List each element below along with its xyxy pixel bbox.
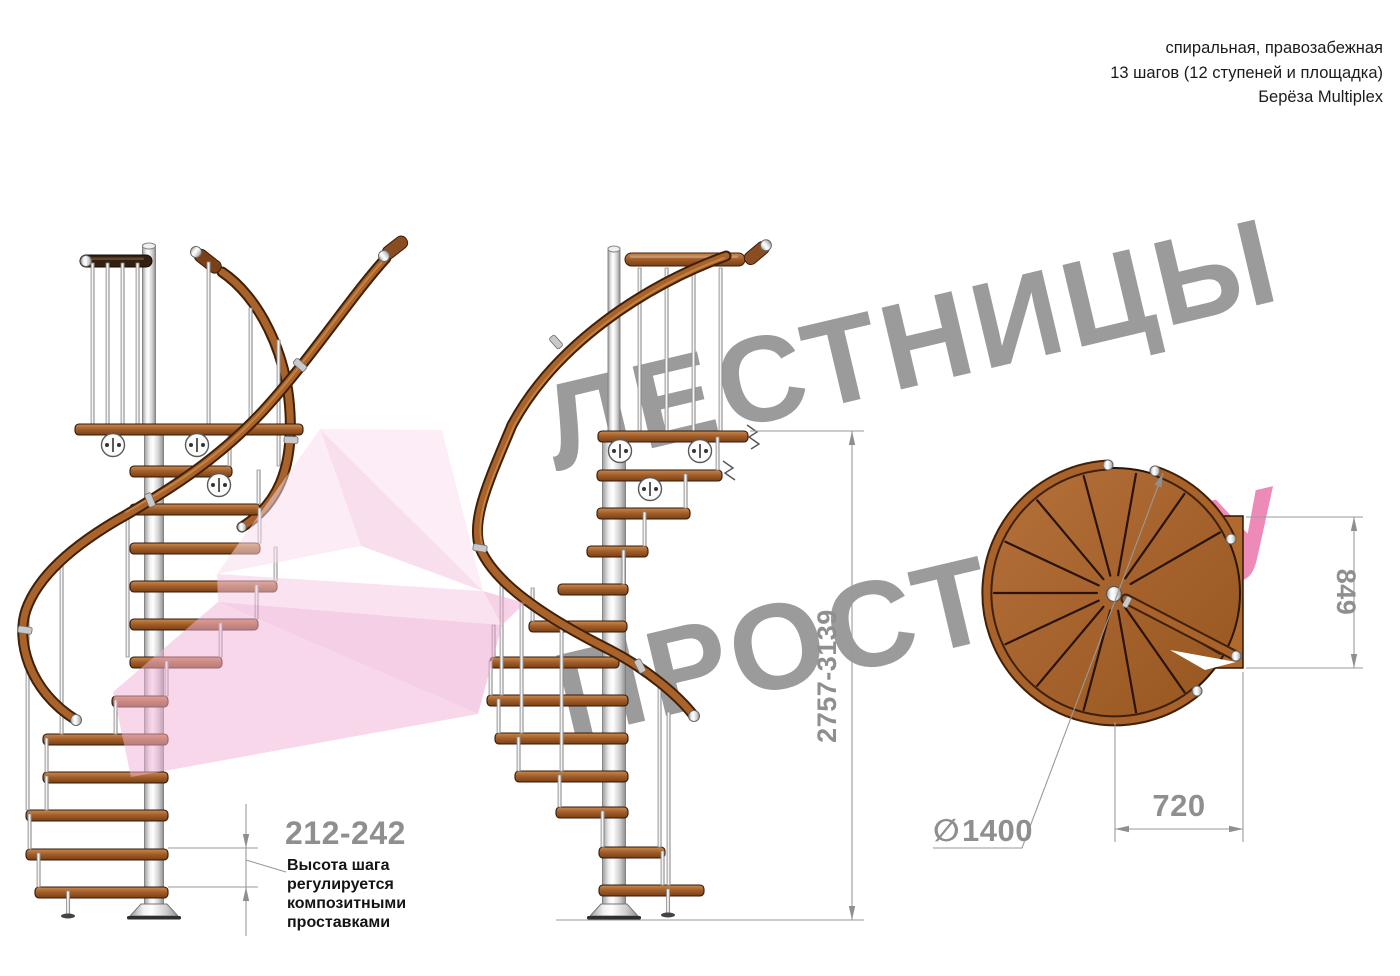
- center-staircase-side-view: [472, 237, 774, 920]
- diameter-label: ∅1400: [933, 813, 1033, 848]
- landing-depth-label: 849: [1331, 569, 1361, 616]
- title-line-type: спиральная, правозабежная: [1110, 36, 1383, 61]
- title-line-steps: 13 шагов (12 ступеней и площадка): [1110, 61, 1383, 86]
- note-line: композитными: [287, 894, 406, 913]
- note-line: регулируется: [287, 875, 406, 894]
- step-height-label: 212-242: [285, 815, 406, 851]
- total-height-label: 2757-3139: [812, 609, 842, 743]
- diameter-value: 1400: [962, 813, 1033, 848]
- note-line: проставками: [287, 913, 406, 932]
- staircase-plan-view: [987, 460, 1243, 721]
- note-line: Высота шага: [287, 856, 406, 875]
- diameter-symbol: ∅: [933, 813, 960, 848]
- title-block: спиральная, правозабежная 13 шагов (12 с…: [1110, 36, 1383, 110]
- dimension-landing-depth: 849: [1246, 517, 1363, 668]
- landing-width-label: 720: [1152, 788, 1205, 823]
- title-line-material: Берёза Multiplex: [1110, 85, 1383, 110]
- step-height-note: Высота шага регулируется композитными пр…: [287, 856, 406, 932]
- drawing-page: ЛЕСТНИЦЫ ПРОСТО.РУ: [0, 0, 1400, 976]
- staircase-drawing: 2757-3139 212-242 849: [0, 0, 1400, 976]
